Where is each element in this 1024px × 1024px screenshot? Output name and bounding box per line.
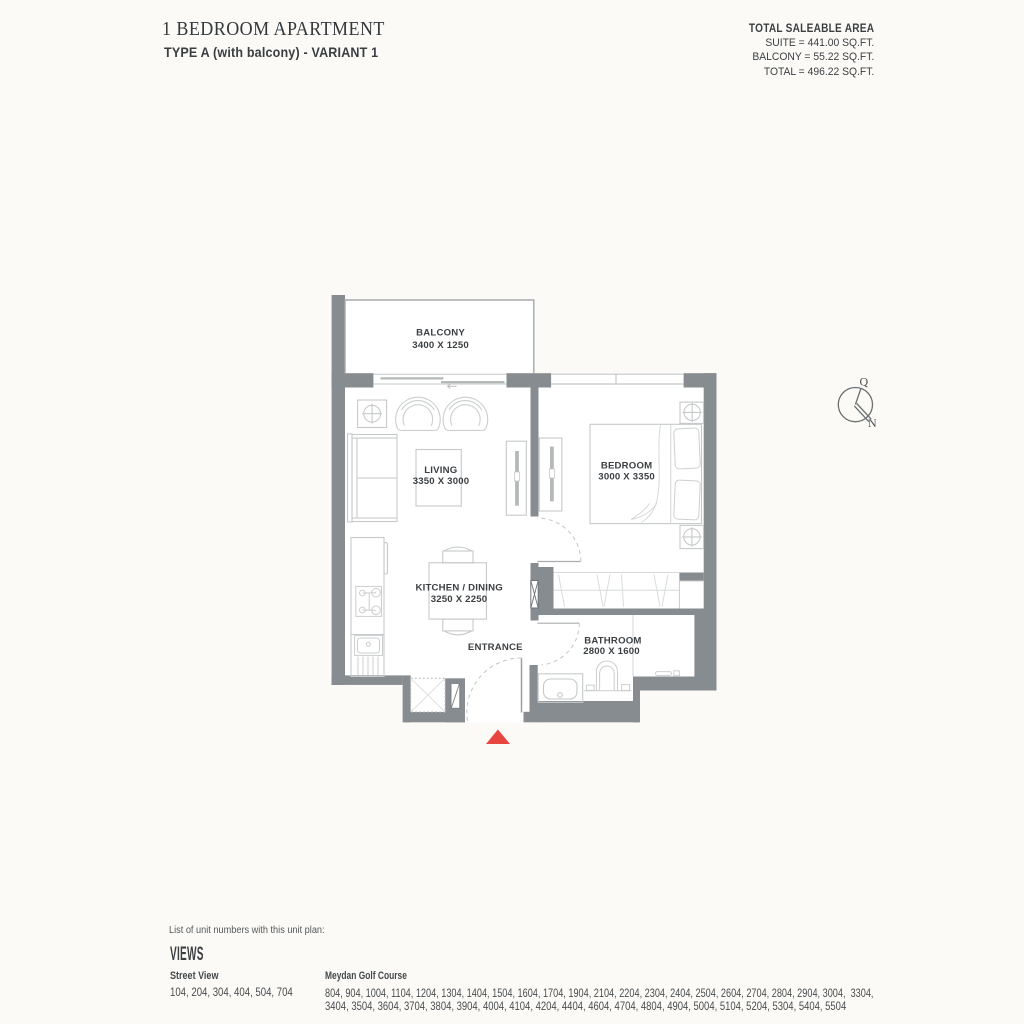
svg-text:N: N — [868, 416, 877, 430]
svg-text:3000 X 3350: 3000 X 3350 — [598, 471, 655, 482]
svg-text:3400 X 1250: 3400 X 1250 — [412, 340, 469, 351]
svg-text:LIVING: LIVING — [424, 465, 457, 476]
svg-text:BALCONY: BALCONY — [416, 328, 465, 339]
svg-text:3350 X 3000: 3350 X 3000 — [413, 476, 470, 487]
svg-text:3250 X 2250: 3250 X 2250 — [431, 594, 488, 605]
svg-text:KITCHEN / DINING: KITCHEN / DINING — [415, 582, 502, 593]
svg-text:2800 X 1600: 2800 X 1600 — [583, 646, 640, 657]
svg-text:Q: Q — [860, 375, 869, 389]
svg-text:BEDROOM: BEDROOM — [601, 461, 653, 472]
svg-text:BATHROOM: BATHROOM — [584, 635, 641, 646]
svg-text:ENTRANCE: ENTRANCE — [468, 642, 523, 653]
